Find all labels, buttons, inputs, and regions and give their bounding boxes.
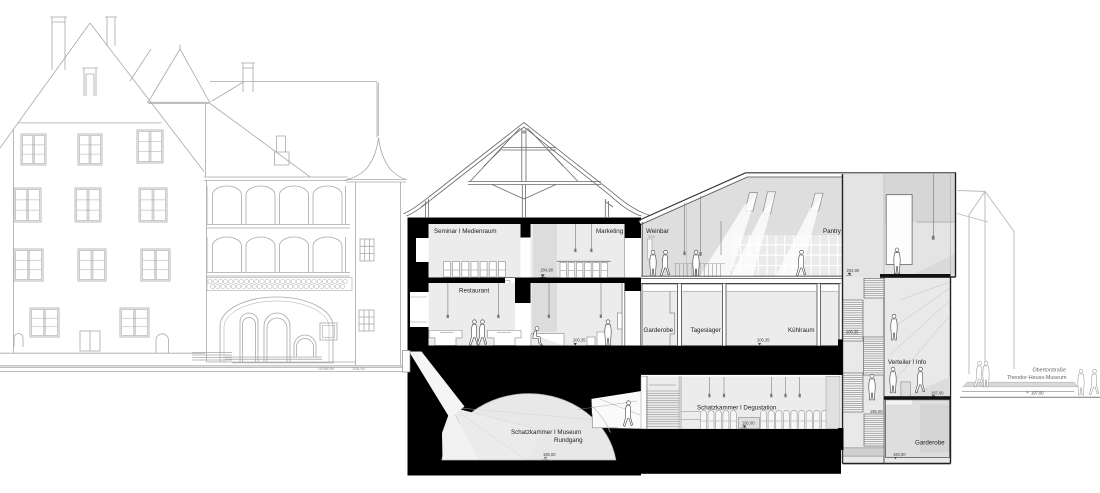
- svg-text:195,50: 195,50: [352, 366, 366, 371]
- svg-text:Marketing: Marketing: [596, 228, 624, 235]
- svg-text:200,35: 200,35: [846, 330, 859, 335]
- svg-text:Kühlraum: Kühlraum: [788, 327, 814, 334]
- svg-text:195,00: 195,00: [543, 452, 556, 457]
- svg-text:Obertorstraße: Obertorstraße: [1032, 368, 1066, 374]
- svg-text:200,35: 200,35: [757, 338, 770, 343]
- svg-text:Schatzkammer I Museum: Schatzkammer I Museum: [511, 429, 581, 436]
- svg-text:204,90: 204,90: [541, 268, 554, 273]
- svg-text:Theodor-Heuss-Museum: Theodor-Heuss-Museum: [1007, 375, 1067, 381]
- svg-text:195,00: 195,00: [870, 409, 883, 414]
- svg-text:Garderobe: Garderobe: [915, 440, 945, 447]
- svg-text:204,90: 204,90: [847, 268, 860, 273]
- svg-text:193,00: 193,00: [893, 452, 906, 457]
- svg-text:Verteiler I Info: Verteiler I Info: [888, 359, 927, 366]
- svg-text:Weinbar: Weinbar: [646, 228, 669, 235]
- svg-text:Gelände: Gelände: [318, 366, 335, 371]
- svg-text:Schatzkammer I Degustation: Schatzkammer I Degustation: [697, 405, 777, 412]
- svg-text:Garderobe: Garderobe: [644, 327, 674, 334]
- svg-text:195,00: 195,00: [742, 421, 755, 426]
- svg-text:Seminar I Medienraum: Seminar I Medienraum: [434, 228, 497, 235]
- svg-text:Tageslager: Tageslager: [691, 327, 721, 334]
- svg-text:197,00: 197,00: [931, 391, 944, 396]
- svg-text:Restaurant: Restaurant: [459, 288, 490, 295]
- svg-text:197,00: 197,00: [1031, 391, 1044, 396]
- svg-text:200,35: 200,35: [573, 338, 586, 343]
- svg-text:Rundgang: Rundgang: [554, 437, 583, 444]
- svg-text:Pantry: Pantry: [823, 228, 842, 235]
